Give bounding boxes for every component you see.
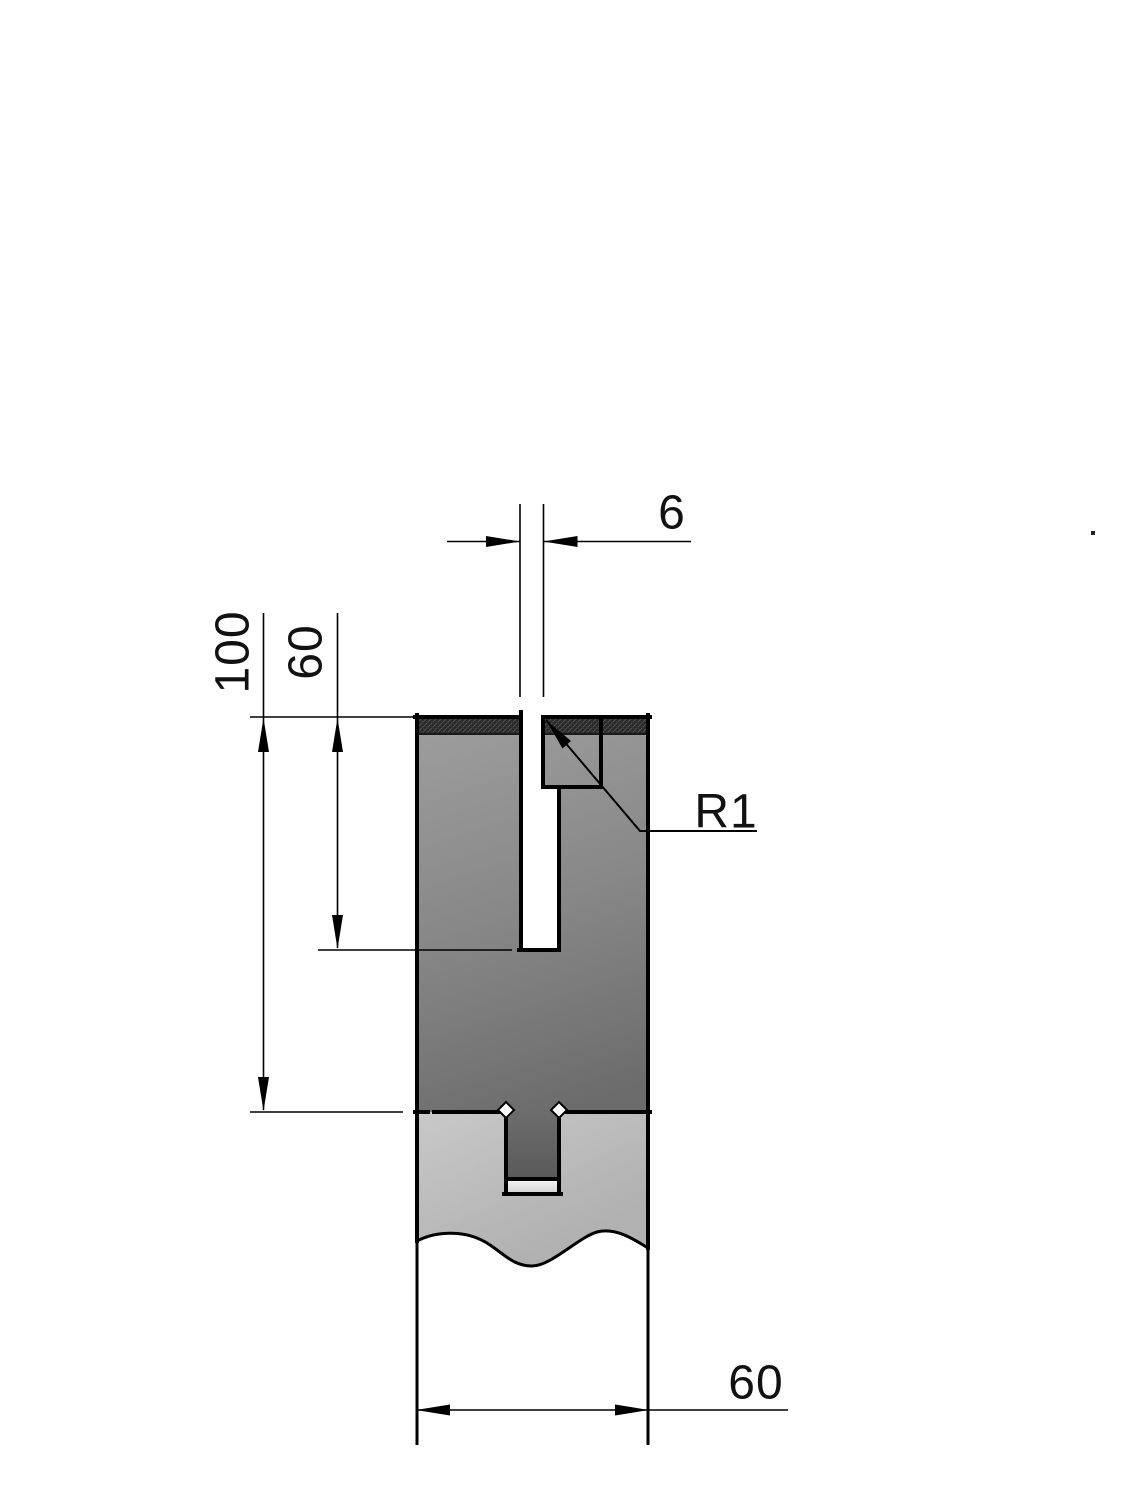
arrow-body-width-right bbox=[615, 1405, 649, 1416]
arrow-overall-height-bottom bbox=[258, 1077, 269, 1111]
dim-text-slot-radius: R1 bbox=[694, 786, 757, 839]
arrow-slot-width-left bbox=[486, 536, 520, 547]
dim-text-overall-height: 100 bbox=[207, 610, 260, 693]
arrow-slot-depth-bottom bbox=[332, 915, 343, 949]
drawing-canvas: 6 100 60 R1 60 bbox=[0, 0, 1124, 1500]
arrow-overall-height-top bbox=[258, 718, 269, 752]
arrow-slot-width-right bbox=[544, 536, 578, 547]
dim-text-slot-depth: 60 bbox=[280, 624, 333, 679]
arrow-slot-depth-top bbox=[332, 718, 343, 752]
die-tang bbox=[508, 1106, 557, 1179]
speck-artifact bbox=[1091, 531, 1095, 535]
technical-drawing-page: 6 100 60 R1 60 bbox=[0, 0, 1124, 1500]
arrow-body-width-left bbox=[416, 1405, 450, 1416]
dim-text-slot-width: 6 bbox=[658, 487, 686, 540]
dim-text-body-width: 60 bbox=[728, 1357, 783, 1410]
